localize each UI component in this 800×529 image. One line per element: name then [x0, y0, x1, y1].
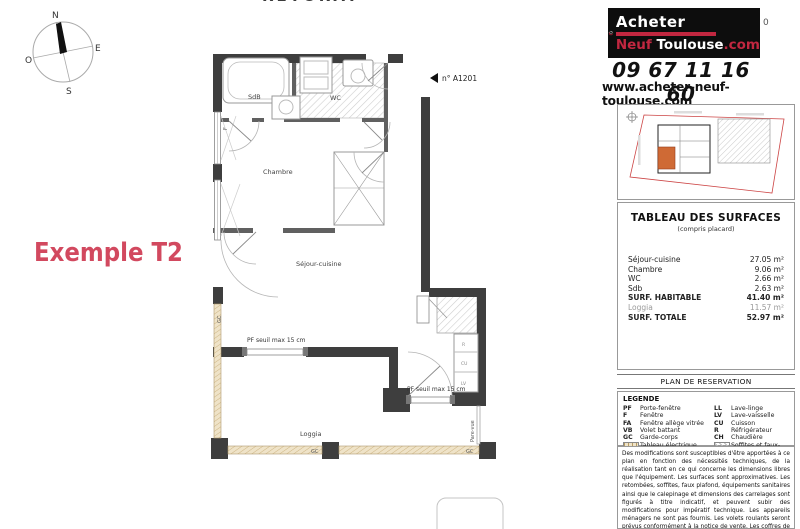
pf-seuil-label-2: PF seuil max 15 cm: [407, 386, 466, 393]
surfaces-title: TABLEAU DES SURFACES: [618, 212, 794, 224]
legend-row: FFenêtre LVLave-vaisselle: [623, 412, 789, 419]
floorplan-page: N E S O: [0, 0, 800, 529]
pare-vue-screen: [477, 406, 480, 444]
legend-row: VBVolet battant RRéfrigérateur: [623, 427, 789, 434]
site-location-map: [617, 104, 795, 200]
compass-south-label: S: [66, 87, 72, 97]
pf-seuil-label-1: PF seuil max 15 cm: [247, 337, 306, 344]
compass-north-label: N: [52, 11, 59, 21]
logo-text-toulouse: Toulouse: [657, 37, 724, 53]
legend: LEGENDE PFPorte-fenêtre LLLave-linge FFe…: [617, 391, 795, 446]
pf-window-sejour: [242, 347, 308, 356]
room-label-chambre: Chambre: [263, 168, 293, 176]
table-row: Sdb2.63 m²: [628, 284, 784, 294]
room-label-wc: WC: [330, 94, 341, 102]
building-floor-label: BATIMENT A - 12e ETAGE: [617, 93, 795, 99]
disclaimer: Des modifications sont susceptibles d'êt…: [617, 446, 795, 529]
legend-row: FAFenêtre allège vitrée CUCuisson: [623, 420, 789, 427]
agency-logo[interactable]: Acheter Neuf Toulouse.com: [608, 8, 760, 58]
example-type-label: Exemple T2: [34, 238, 183, 268]
building-footprint: [658, 125, 710, 173]
window-f-label: F: [223, 127, 229, 130]
table-row-habitable: SURF. HABITABLE41.40 m²: [628, 293, 784, 303]
unit-number-label: n° A1201: [442, 74, 477, 83]
gc-label-left: GC: [217, 315, 223, 323]
stray-character: 0: [763, 18, 769, 28]
residence-title-clipped: RETORAT: [262, 0, 422, 9]
table-row-totale: SURF. TOTALE52.97 m²: [628, 313, 784, 323]
appliance-cu-label: CU: [461, 361, 467, 367]
logo-text-com: .com: [724, 37, 760, 53]
logo-divider: [616, 32, 716, 36]
room-label-loggia: Loggia: [300, 430, 322, 438]
gc-label-bottom-2: GC: [466, 449, 474, 455]
gc-label-bottom-1: GC: [311, 449, 319, 455]
appliance-r-label: R: [462, 342, 465, 348]
pare-vue-label: Pare-vue: [470, 420, 476, 442]
mini-compass-icon: [626, 111, 638, 123]
pf-window-kitchen: [406, 395, 455, 404]
toilet: [343, 60, 373, 86]
disclaimer-text: Des modifications sont susceptibles d'êt…: [622, 450, 790, 529]
surfaces-table: TABLEAU DES SURFACES (compris placard) S…: [617, 202, 795, 370]
entry-arrow-icon: [430, 73, 438, 83]
building-neighbour-hatch: [718, 119, 770, 163]
compass-west-label: O: [25, 56, 32, 66]
lower-balcony-outline: [437, 498, 503, 529]
room-label-sejour: Séjour-cuisine: [296, 260, 341, 268]
laundry-column: [300, 57, 332, 93]
table-row: Séjour-cuisine27.05 m²: [628, 255, 784, 265]
compass-east-label: E: [95, 44, 101, 54]
highlighted-unit: [658, 147, 675, 169]
house-icon: [608, 10, 614, 56]
room-label-sdb: SdB: [248, 93, 261, 101]
logo-text-neuf: Neuf: [616, 37, 652, 53]
table-row: Chambre9.06 m²: [628, 265, 784, 275]
table-row-loggia: Loggia11.57 m²: [628, 303, 784, 313]
reservation-plan-title: PLAN DE RESERVATION: [617, 374, 795, 389]
logo-text-acheter: Acheter: [616, 15, 686, 30]
closet: [334, 152, 384, 225]
compass-icon: N E S O: [25, 11, 101, 97]
washbasin: [272, 96, 300, 119]
table-row: WC2.66 m²: [628, 274, 784, 284]
surfaces-subtitle: (compris placard): [618, 225, 794, 233]
compass-needle-icon: [56, 22, 67, 54]
legend-title: LEGENDE: [623, 395, 789, 403]
legend-row: GCGarde-corps CHChaudière: [623, 434, 789, 441]
